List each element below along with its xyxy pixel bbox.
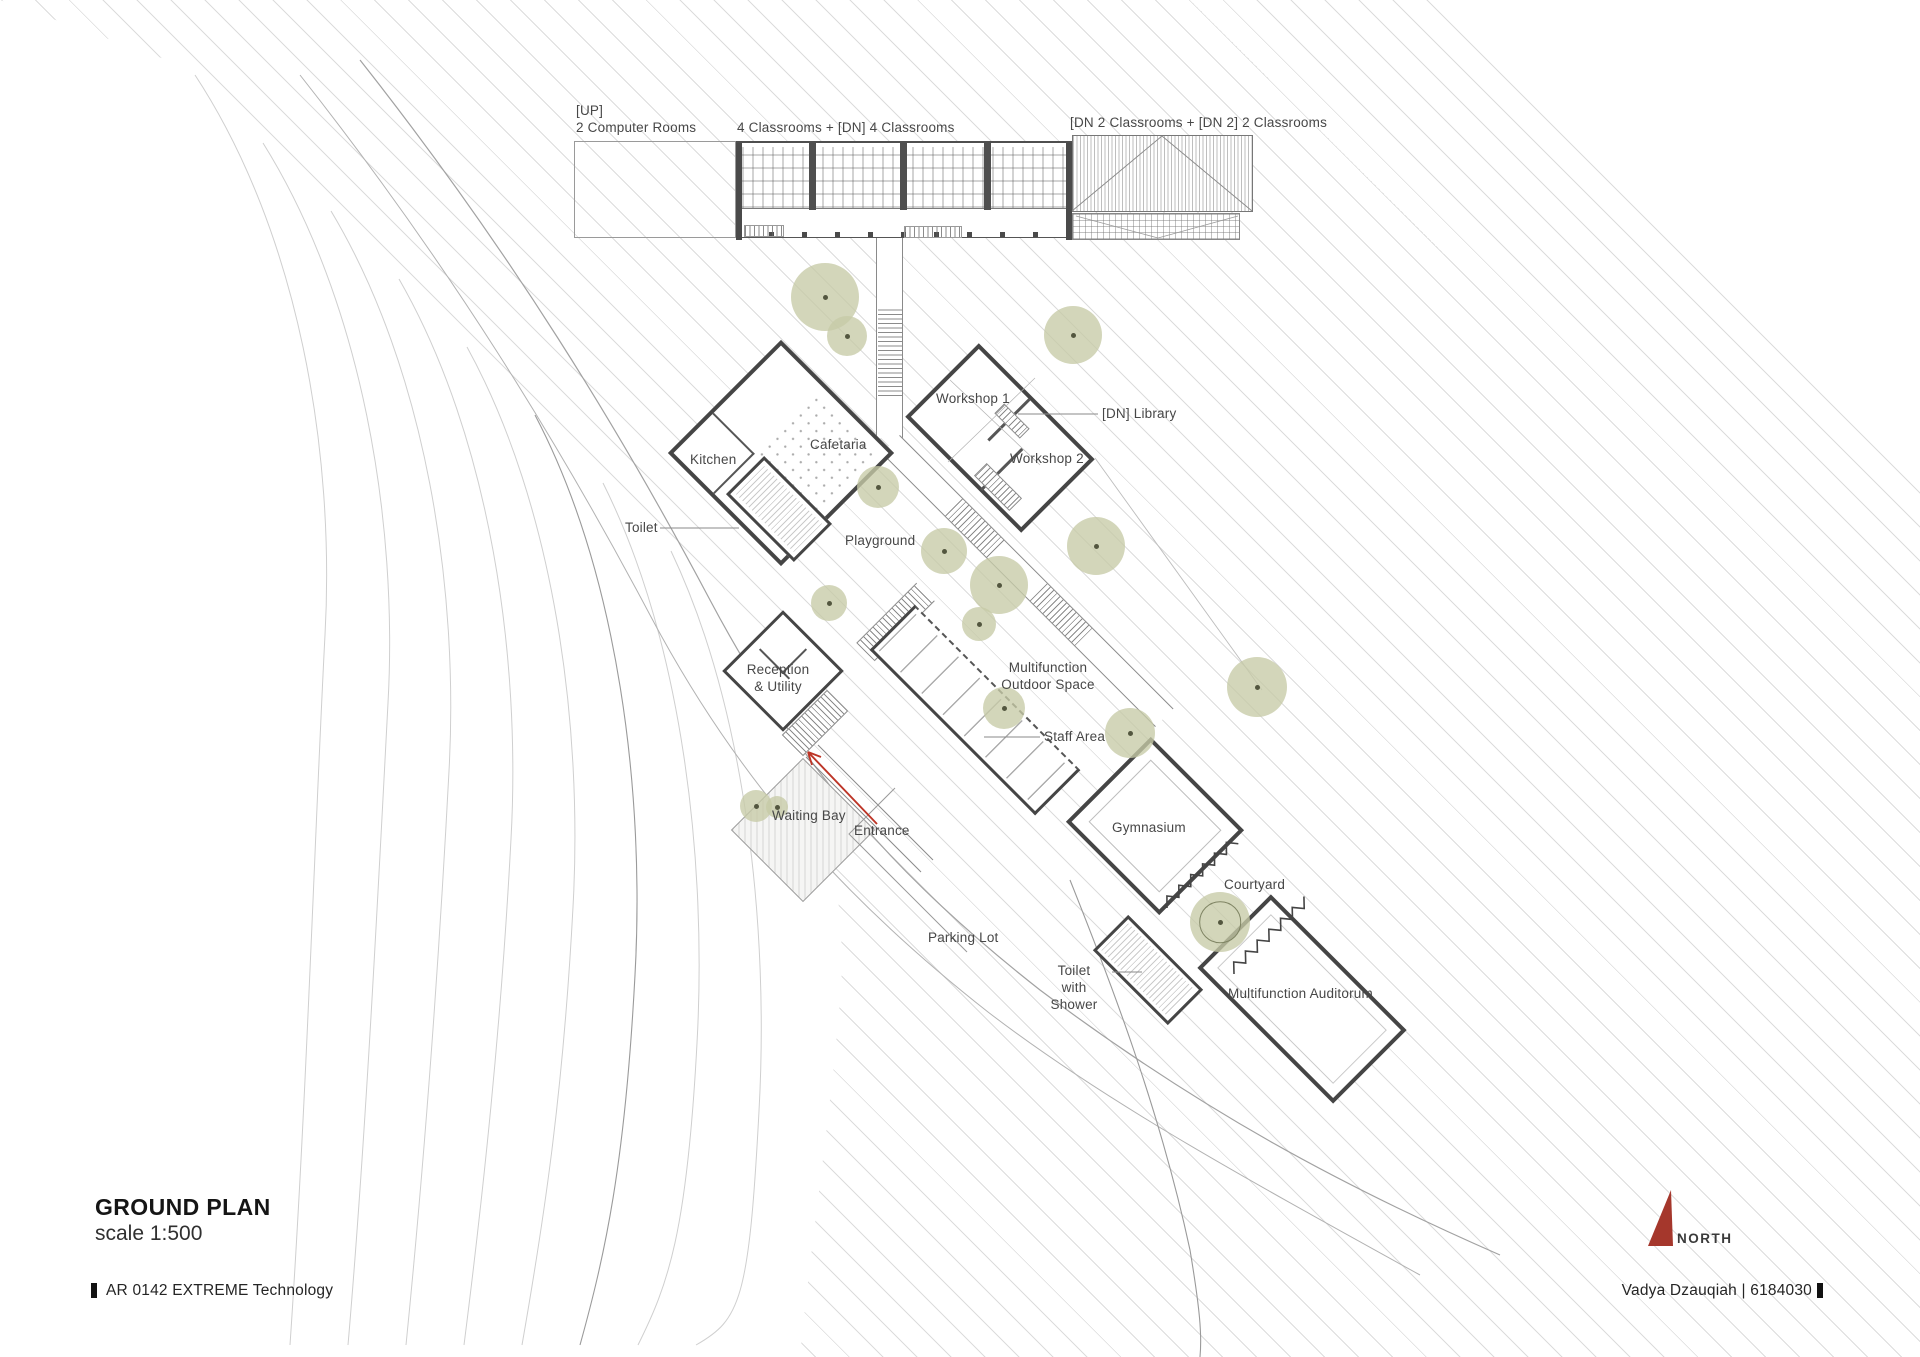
- tree: [983, 687, 1025, 729]
- drawing-sheet: [UP] 2 Computer Rooms 4 Classrooms + [DN…: [0, 0, 1920, 1357]
- corridor-stairs-west: [744, 225, 784, 237]
- tree: [1105, 708, 1155, 758]
- label-workshop-2: Workshop 2: [1010, 450, 1084, 467]
- north-label: NORTH: [1677, 1231, 1733, 1246]
- tree-trunk: [977, 622, 982, 627]
- footer-marker-left: [91, 1283, 97, 1298]
- label-parking-lot: Parking Lot: [928, 929, 999, 946]
- label-gymnasium: Gymnasium: [1112, 819, 1186, 836]
- footer-marker-right: [1817, 1283, 1823, 1298]
- tree-trunk: [827, 601, 832, 606]
- computer-rooms-outline: [574, 141, 736, 238]
- tree: [811, 585, 847, 621]
- footer-author: Vadya Dzauqiah | 6184030: [1622, 1282, 1812, 1300]
- east-classrooms-annex: [1072, 213, 1240, 240]
- label-classrooms-east: [DN 2 Classrooms + [DN 2] 2 Classrooms: [1070, 114, 1327, 131]
- kitchen-partition: [712, 413, 754, 455]
- label-toilet-shower: Toilet with Shower: [1038, 962, 1110, 1013]
- tree-trunk: [1071, 333, 1076, 338]
- label-auditorium: Multifunction Auditorum: [1228, 985, 1373, 1002]
- drawing-scale: scale 1:500: [95, 1222, 202, 1246]
- label-kitchen: Kitchen: [690, 451, 736, 468]
- label-toilet: Toilet: [625, 519, 658, 536]
- east-classrooms-roof: [1072, 135, 1253, 212]
- label-reception: Reception & Utility: [722, 661, 834, 695]
- tree: [827, 316, 867, 356]
- tree: [1067, 517, 1125, 575]
- tree-trunk: [997, 583, 1002, 588]
- label-waiting-bay: Waiting Bay: [772, 807, 846, 824]
- tree-trunk: [876, 485, 881, 490]
- classroom-divider: [900, 143, 907, 210]
- label-entrance: Entrance: [854, 822, 910, 839]
- tree-trunk: [823, 295, 828, 300]
- tree-trunk: [1002, 706, 1007, 711]
- tree-trunk: [1255, 685, 1260, 690]
- tree-trunk: [845, 334, 850, 339]
- walkway-north: [876, 238, 903, 438]
- label-staff-area: Staff Area: [1044, 728, 1105, 745]
- label-outdoor-space: Multifunction Outdoor Space: [988, 659, 1108, 693]
- label-workshop-1: Workshop 1: [936, 390, 1010, 407]
- classroom-divider: [809, 143, 816, 210]
- label-courtyard: Courtyard: [1224, 876, 1285, 893]
- corridor-stairs-center: [904, 226, 962, 238]
- classroom-building: [736, 141, 1072, 238]
- label-cafetaria: Cafetaria: [810, 436, 867, 453]
- tree: [1044, 306, 1102, 364]
- label-playground: Playground: [845, 532, 915, 549]
- label-computer-rooms: [UP] 2 Computer Rooms: [576, 102, 696, 136]
- tree: [857, 466, 899, 508]
- tree: [1227, 657, 1287, 717]
- tree-trunk: [1218, 920, 1223, 925]
- label-classrooms-center: 4 Classrooms + [DN] 4 Classrooms: [737, 119, 955, 136]
- tree-trunk: [754, 804, 759, 809]
- classroom-divider: [984, 143, 991, 210]
- footer-project: AR 0142 EXTREME Technology: [106, 1282, 333, 1300]
- courtyard-tree: [1190, 892, 1250, 952]
- classroom-wall-west: [736, 143, 742, 240]
- tree: [962, 607, 996, 641]
- tree-trunk: [942, 549, 947, 554]
- tree: [970, 556, 1028, 614]
- tree-trunk: [1094, 544, 1099, 549]
- tree: [921, 528, 967, 574]
- tree-trunk: [1128, 731, 1133, 736]
- page-title: GROUND PLAN: [95, 1194, 271, 1221]
- label-library: [DN] Library: [1102, 405, 1176, 422]
- walkway-north-stairs: [878, 308, 902, 396]
